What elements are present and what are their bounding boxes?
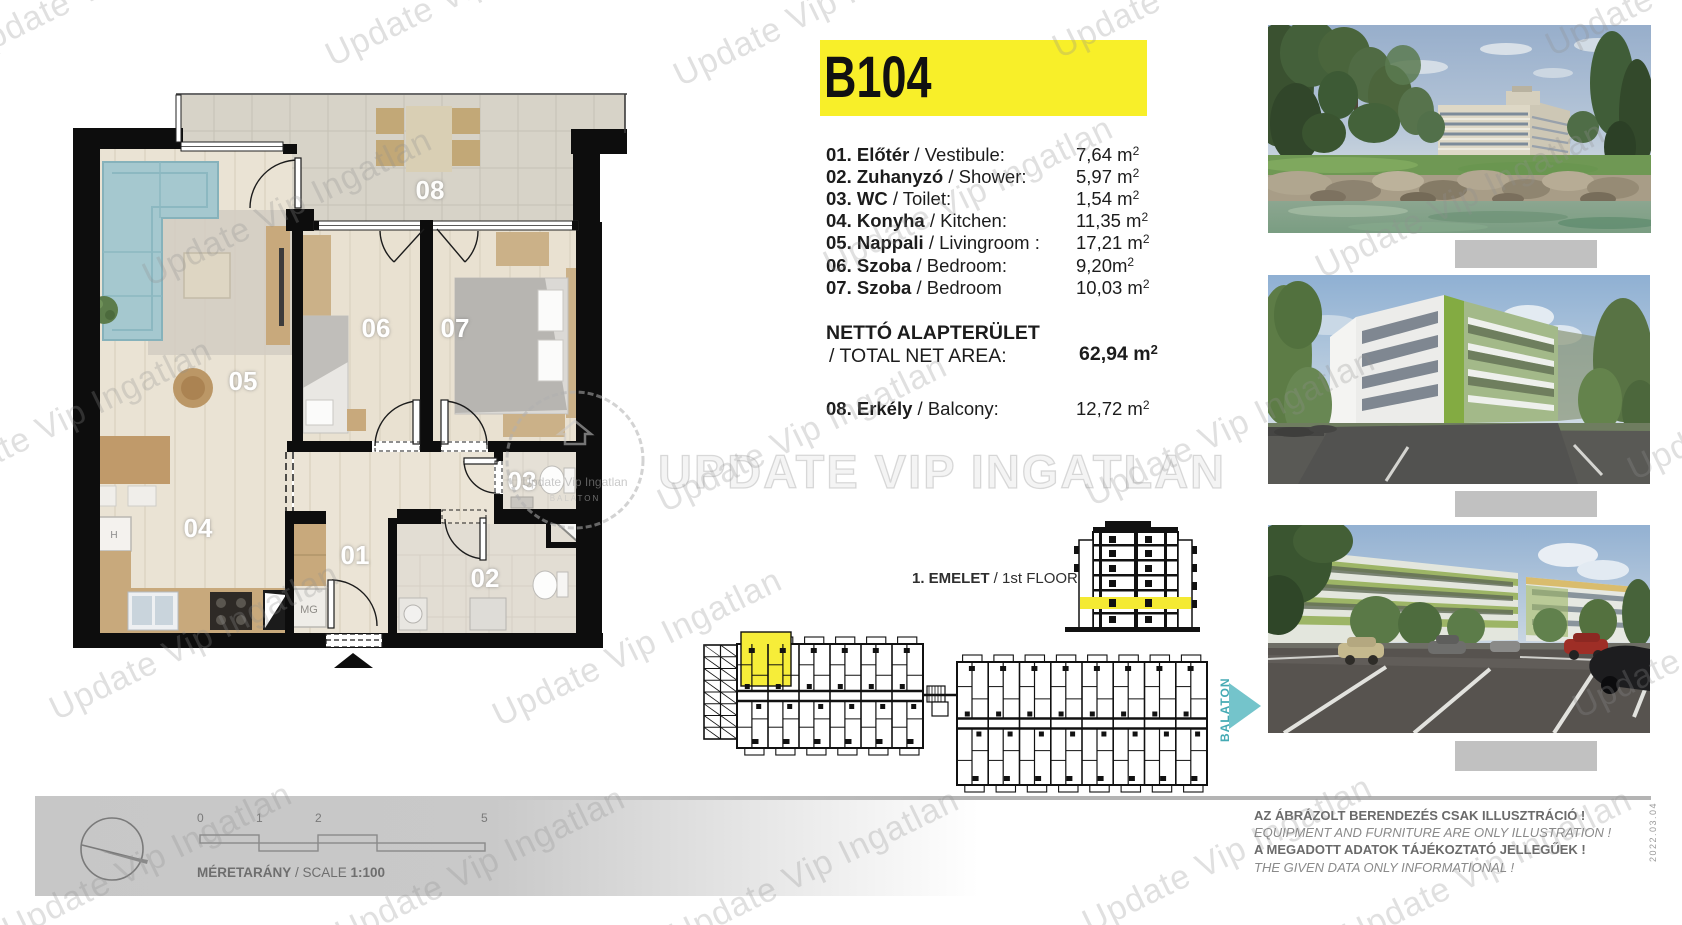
- svg-text:06: 06: [362, 313, 391, 343]
- svg-text:H: H: [110, 530, 117, 541]
- svg-text:0: 0: [197, 811, 204, 825]
- svg-text:01: 01: [341, 540, 370, 570]
- svg-text:07: 07: [441, 313, 470, 343]
- svg-text:02: 02: [471, 563, 500, 593]
- svg-text:1: 1: [256, 811, 263, 825]
- svg-text:04: 04: [184, 513, 213, 543]
- svg-text:08: 08: [416, 175, 445, 205]
- svg-text:MG: MG: [300, 604, 318, 616]
- svg-text:03: 03: [508, 466, 537, 496]
- svg-text:2: 2: [315, 811, 322, 825]
- svg-text:05: 05: [229, 366, 258, 396]
- svg-text:MÉRETARÁNY / SCALE 1:100: MÉRETARÁNY / SCALE 1:100: [197, 865, 385, 880]
- svg-text:5: 5: [481, 811, 488, 825]
